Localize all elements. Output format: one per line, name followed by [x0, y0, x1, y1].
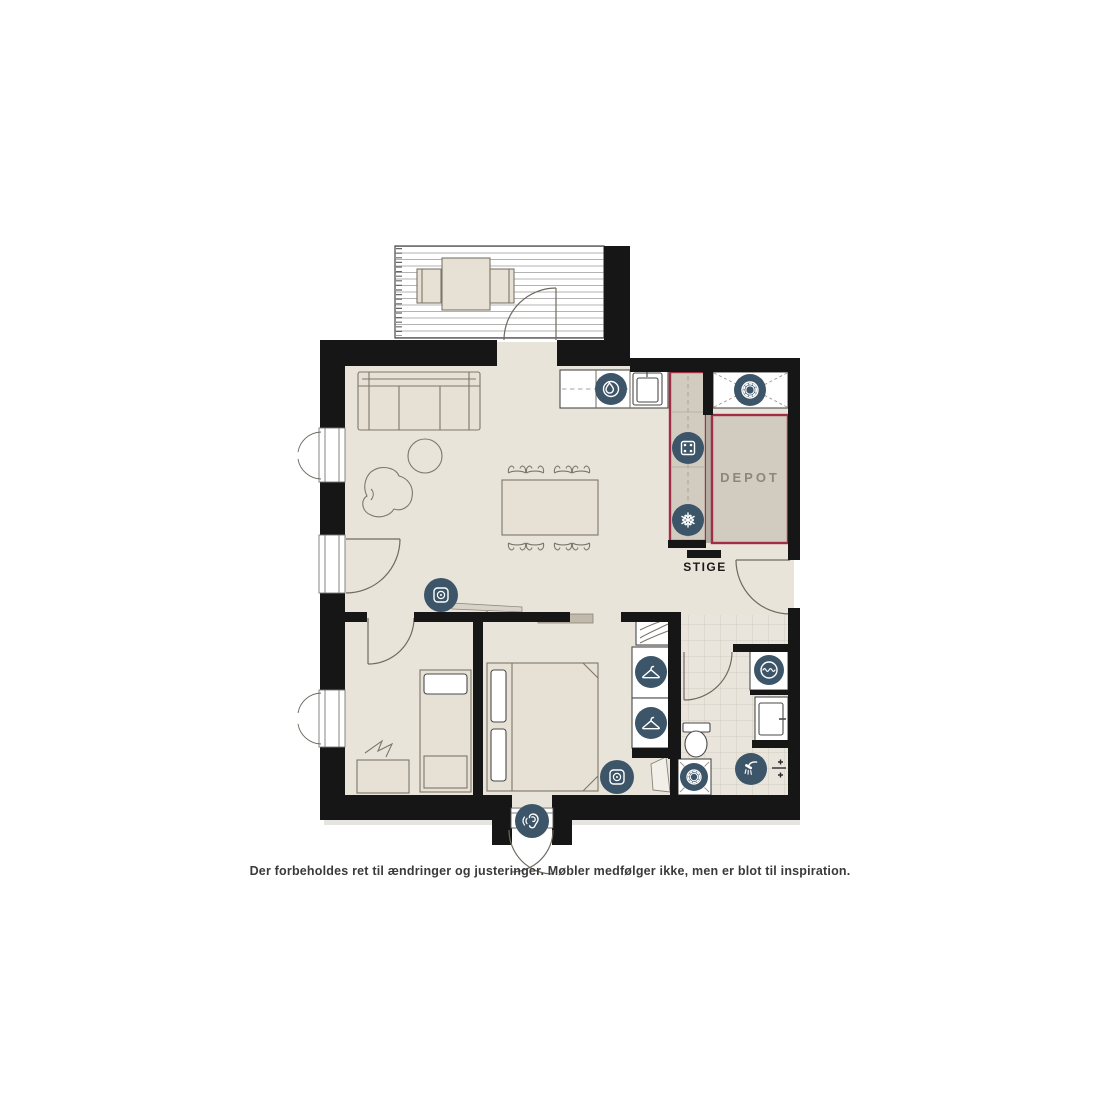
disclaimer-text: Der forbeholdes ret til ændringer og jus…: [0, 864, 1100, 878]
dishwasher-icon: [595, 373, 627, 405]
shower-icon: [735, 753, 767, 785]
entrance: [509, 795, 553, 874]
tumble-dryer: [750, 650, 788, 690]
sofa: [358, 372, 480, 430]
balcony: [395, 246, 604, 340]
washing-machine-niche: [713, 372, 788, 408]
kitchen-tall-cabinets: [670, 372, 706, 541]
balcony-chair-right: [490, 269, 514, 303]
single-bed: [420, 670, 471, 792]
ladder-hatch-bar: [687, 550, 721, 558]
wardrobe-2: [632, 698, 670, 748]
freezer-icon: [672, 504, 704, 536]
smoke-detector-icon-2: [600, 760, 634, 794]
floor-plan-page: DEPOT STIGE: [0, 0, 1100, 1100]
desk: [357, 760, 409, 793]
wardrobe-1: [632, 647, 670, 698]
window-3: [298, 690, 345, 747]
bathroom-vanity: [755, 697, 788, 742]
balcony-chair-left: [417, 269, 441, 303]
washing-machine-spot: [678, 759, 711, 795]
floor-plan: DEPOT STIGE: [0, 0, 1100, 1100]
ladder-label: STIGE: [683, 560, 727, 574]
smoke-detector-icon: [424, 578, 458, 612]
kitchen-sink: [633, 368, 662, 405]
balcony-table: [442, 258, 490, 310]
double-bed: [487, 663, 598, 791]
washing-machine-icon-2: [680, 763, 708, 791]
depot-label: DEPOT: [720, 470, 780, 485]
window-1: [298, 428, 345, 482]
stove-icon: [672, 432, 704, 464]
wardrobe-hanger-icon: [635, 656, 667, 688]
depot-room: DEPOT: [712, 415, 788, 543]
wardrobe-hanger-icon-2: [635, 707, 667, 739]
tumble-dryer-icon: [754, 655, 784, 685]
doorbell-ear-icon: [515, 804, 549, 838]
washing-machine-icon: [734, 374, 766, 406]
